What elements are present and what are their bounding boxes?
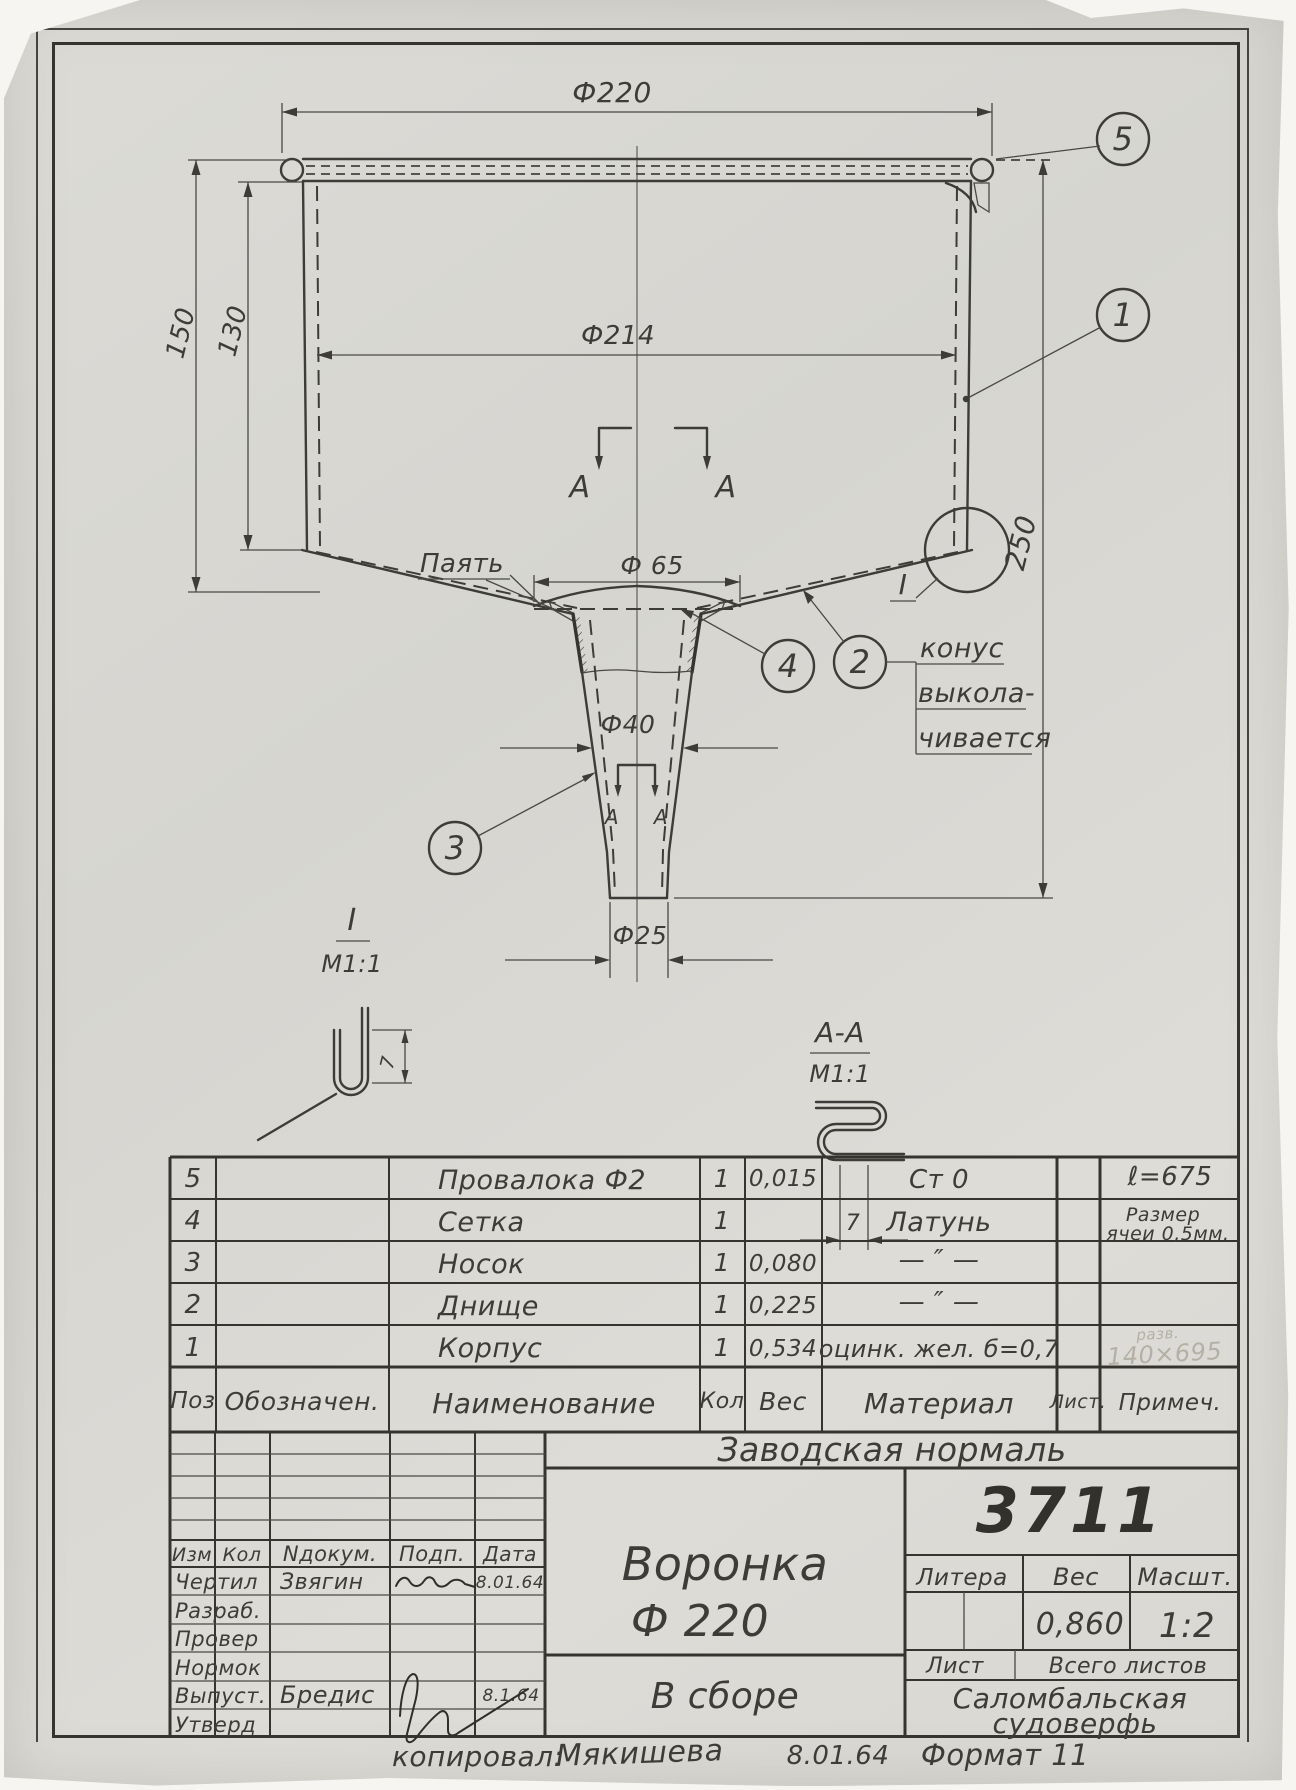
row-weight: 0,015	[749, 1166, 817, 1192]
row-qty: 1	[714, 1164, 730, 1193]
row-material: оцинк. жел. б=0,7	[819, 1335, 1060, 1363]
part-callouts: 5 1 4 2 3	[429, 113, 1149, 874]
detail-i-scale: М1:1	[321, 950, 382, 978]
callout-number-3: 3	[445, 829, 466, 867]
weight-label: Вес	[1053, 1563, 1099, 1591]
section-aa-dim-7: 7	[846, 1211, 861, 1236]
row-name: Сетка	[438, 1207, 525, 1238]
col-header-sheet: Лист.	[1049, 1391, 1107, 1413]
col-header-qty: Кол	[700, 1389, 745, 1414]
rim-left-roll-section	[281, 159, 303, 181]
document-number: 3711	[976, 1474, 1165, 1547]
footer: копировал: Мякишева 8.01.64 Формат 11	[392, 1733, 1089, 1774]
dim-label-d65: Ф 65	[620, 551, 683, 580]
solder-note: Паять	[420, 549, 504, 579]
rim-wire-section	[971, 159, 993, 181]
callout-number-1: 1	[1113, 296, 1134, 334]
rim-fold-hatch	[974, 183, 989, 212]
col-header-pos: Поз	[170, 1388, 215, 1414]
row-note: ℓ=675	[1127, 1162, 1213, 1192]
format-label: Формат 11	[921, 1738, 1089, 1772]
col-sign: Подп.	[399, 1542, 465, 1566]
row-name: Носок	[438, 1249, 525, 1280]
row-name: Корпус	[438, 1333, 542, 1364]
row-material: Ст 0	[909, 1165, 969, 1195]
product-diameter: Ф 220	[631, 1596, 769, 1647]
section-marks: А А А А	[567, 428, 736, 829]
row-material-ditto: — ″ —	[899, 1287, 980, 1317]
copied-date: 8.01.64	[787, 1741, 890, 1771]
row-name: Провалока Ф2	[438, 1165, 646, 1196]
col-kol: Кол	[223, 1544, 262, 1566]
detail-i-clip-inner	[340, 1008, 362, 1089]
col-ndoc: Nдокум.	[283, 1542, 377, 1566]
detail-i-sheet-tail	[258, 1094, 336, 1140]
row-pos: 1	[184, 1333, 201, 1363]
spout-right-wall	[667, 672, 692, 898]
row-name: Днище	[437, 1291, 539, 1322]
parts-table: 5 Провалока Ф2 1 0,015 Ст 0 ℓ=675 4 Сетк…	[170, 1157, 1240, 1432]
col-izm: Изм	[172, 1544, 212, 1566]
section-aa-scale: М1:1	[809, 1060, 870, 1088]
assembly-state: В сборе	[651, 1676, 800, 1717]
row-pos: 3	[184, 1248, 201, 1278]
dim-label-d25: Ф25	[613, 921, 668, 950]
callout-number-4: 4	[778, 647, 799, 685]
callout-number-5: 5	[1113, 120, 1134, 158]
annotations: Паять конус выкола- чивается I	[418, 508, 1051, 754]
row-weight: 0,225	[749, 1293, 817, 1319]
col-date: Дата	[482, 1542, 537, 1566]
body-right-wall	[967, 181, 971, 550]
row-pos: 4	[184, 1206, 201, 1236]
callout-number-2: 2	[850, 643, 871, 681]
row-qty: 1	[714, 1290, 730, 1319]
row-qty: 1	[714, 1333, 730, 1362]
dim-label-250: 250	[998, 512, 1043, 573]
title-block: Заводская нормаль Воронка Ф 220 В сборе …	[170, 1430, 1240, 1742]
signature-chertil	[396, 1577, 475, 1587]
date-chertil: 8.01.64	[476, 1573, 544, 1593]
cone-note-line1: конус	[920, 633, 1004, 664]
role-normok: Нормок	[175, 1656, 261, 1680]
dim-label-d220: Ф220	[572, 76, 652, 109]
role-razrab: Разраб.	[175, 1599, 261, 1623]
cone-right-slope	[701, 550, 972, 614]
org-name-line2: судоверфь	[993, 1707, 1158, 1740]
signature-vypust	[400, 1674, 528, 1742]
detail-i-label: I	[347, 903, 356, 938]
detail-i: I М1:1 7	[258, 903, 412, 1140]
col-header-material: Материал	[864, 1387, 1014, 1420]
weight-value: 0,860	[1036, 1607, 1124, 1642]
cone-note-line2: выкола-	[918, 678, 1035, 709]
role-chertil: Чертил	[175, 1570, 258, 1594]
row-pos: 2	[184, 1290, 201, 1320]
row-weight: 0,534	[749, 1336, 817, 1362]
body-left-wall	[303, 181, 307, 550]
section-letter-lower-left: А	[603, 805, 619, 829]
section-letter-right: А	[713, 470, 736, 505]
copied-signature: Мякишева	[555, 1733, 724, 1774]
row-material: Латунь	[885, 1207, 991, 1238]
section-letter-left: А	[567, 470, 590, 505]
standard-title: Заводская нормаль	[717, 1430, 1066, 1469]
name-chertil: Звягин	[280, 1570, 364, 1595]
scale-value: 1:2	[1159, 1606, 1215, 1646]
cone-note-line3: чивается	[918, 723, 1051, 754]
sheets-total-label: Всего листов	[1049, 1654, 1207, 1679]
blueprint-canvas: Ф220 Ф214 150 130 250 Ф 65 Ф40	[0, 0, 1296, 1790]
col-header-note: Примеч.	[1119, 1390, 1222, 1416]
litera-label: Литера	[915, 1565, 1008, 1591]
sheet-label: Лист	[925, 1654, 984, 1679]
row-qty: 1	[714, 1248, 730, 1277]
role-utverd: Утверд	[175, 1713, 256, 1737]
copied-label: копировал:	[392, 1740, 563, 1773]
scale-label: Масшт.	[1137, 1563, 1232, 1591]
role-vypust: Выпуст.	[175, 1684, 266, 1708]
row-qty: 1	[714, 1206, 730, 1235]
row-pos: 5	[184, 1164, 201, 1194]
detail-i-ref: I	[899, 568, 908, 601]
col-header-designation: Обозначен.	[225, 1387, 380, 1416]
col-header-name: Наименование	[432, 1387, 656, 1420]
detail-i-dim-7: 7	[376, 1054, 400, 1072]
date-vypust: 8.1.64	[482, 1686, 539, 1706]
row-weight: 0,080	[749, 1251, 817, 1277]
section-letter-lower-right: А	[652, 805, 668, 829]
row-note2: ячеи 0,5мм.	[1106, 1223, 1229, 1245]
role-prover: Провер	[175, 1627, 259, 1651]
col-header-weight: Вес	[759, 1387, 807, 1416]
row-material-ditto: — ″ —	[899, 1245, 980, 1275]
seam-section-outer	[816, 1102, 904, 1154]
section-aa-label: А-А	[813, 1016, 865, 1049]
dim-label-d214: Ф214	[581, 321, 655, 351]
dim-label-d40: Ф40	[601, 710, 656, 739]
product-name: Воронка	[622, 1537, 829, 1591]
name-vypust: Бредис	[280, 1681, 375, 1709]
